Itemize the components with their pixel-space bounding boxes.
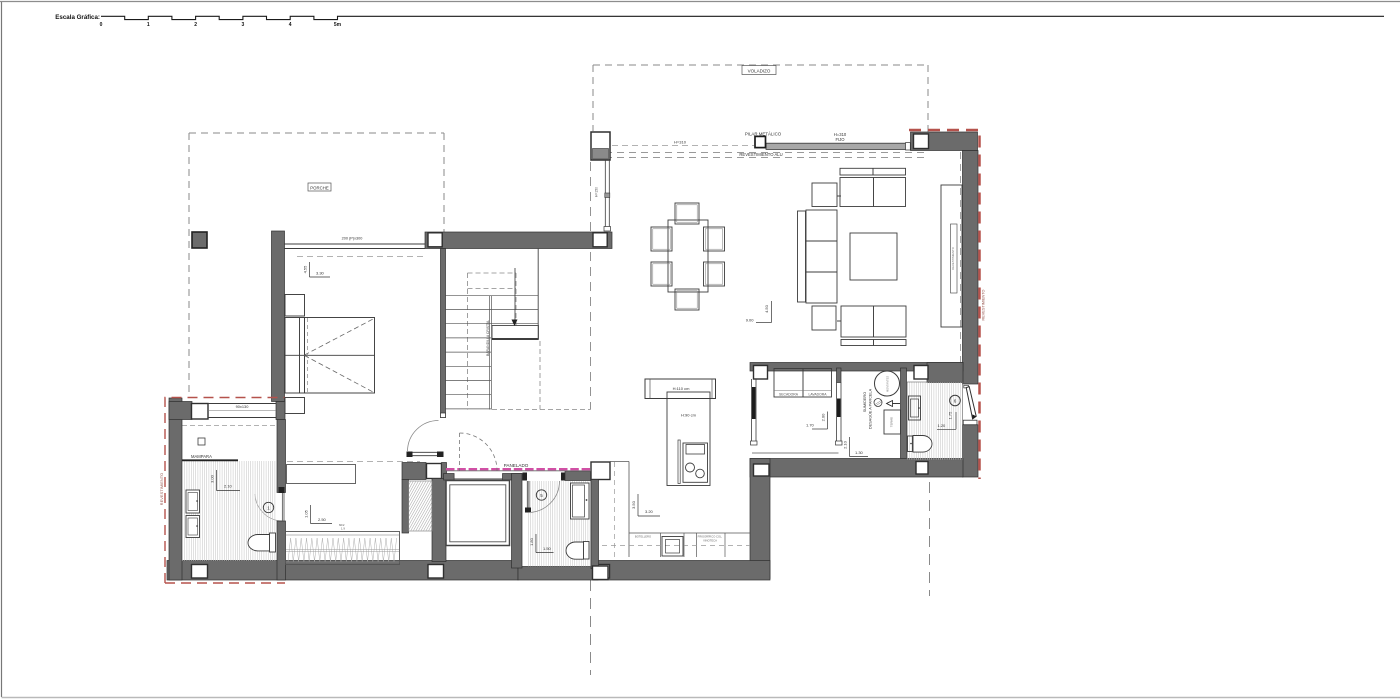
- svg-text:4.55: 4.55: [303, 265, 308, 274]
- svg-text:REVESTIMIENTO: REVESTIMIENTO: [982, 289, 986, 320]
- svg-text:PILAR METÁLICO: PILAR METÁLICO: [745, 131, 782, 136]
- svg-text:H:90 cm: H:90 cm: [681, 413, 697, 418]
- svg-text:5m: 5m: [334, 22, 342, 28]
- svg-text:2.50: 2.50: [318, 517, 327, 522]
- svg-text:MONTANTES: MONTANTES: [886, 376, 890, 392]
- svg-text:9.00: 9.00: [746, 318, 755, 323]
- svg-text:REVESTIMIENTO: REVESTIMIENTO: [159, 473, 164, 506]
- svg-text:1.75: 1.75: [948, 411, 953, 420]
- svg-text:2.00: 2.00: [821, 413, 826, 422]
- svg-text:REVESTIMIENTO: REVESTIMIENTO: [951, 246, 955, 270]
- svg-text:H=310: H=310: [674, 140, 687, 145]
- svg-text:PANELADO: PANELADO: [504, 463, 529, 468]
- svg-text:1.20: 1.20: [938, 423, 947, 428]
- svg-text:FRIGORÍFICO COL.: FRIGORÍFICO COL.: [698, 535, 723, 539]
- svg-text:4.50: 4.50: [764, 304, 769, 313]
- svg-text:1.05: 1.05: [304, 509, 309, 518]
- svg-text:1.9: 1.9: [341, 527, 345, 531]
- svg-text:3.30: 3.30: [316, 271, 325, 276]
- svg-text:3.50: 3.50: [631, 500, 636, 509]
- svg-text:200 (P)x300: 200 (P)x300: [342, 237, 363, 241]
- svg-text:LAVADORA: LAVADORA: [809, 393, 828, 397]
- svg-text:2.10: 2.10: [843, 440, 848, 449]
- svg-text:1.50: 1.50: [543, 546, 552, 551]
- svg-text:3: 3: [242, 22, 245, 28]
- svg-text:BARANDILLA CRISTAL: BARANDILLA CRISTAL: [486, 320, 490, 356]
- svg-text:2: 2: [194, 22, 197, 28]
- svg-text:SUMIDERO: SUMIDERO: [863, 392, 867, 413]
- svg-text:3.20: 3.20: [645, 509, 654, 514]
- svg-text:SECADORA: SECADORA: [779, 393, 799, 397]
- svg-text:PORCHE: PORCHE: [310, 185, 329, 190]
- svg-text:FIJO: FIJO: [835, 137, 845, 142]
- svg-text:2.10: 2.10: [224, 484, 233, 489]
- svg-text:BOTELLERO: BOTELLERO: [635, 535, 651, 539]
- svg-text:DESAGÜE A PARCELA: DESAGÜE A PARCELA: [869, 388, 873, 429]
- svg-text:4: 4: [289, 22, 292, 28]
- svg-text:TERMO: TERMO: [890, 416, 894, 427]
- svg-text:MAMPARA: MAMPARA: [191, 454, 212, 459]
- svg-text:1.80: 1.80: [529, 537, 534, 546]
- svg-text:6: 6: [954, 399, 957, 404]
- svg-text:1.70: 1.70: [806, 423, 815, 428]
- svg-text:3.00: 3.00: [210, 474, 215, 483]
- svg-text:H=150: H=150: [595, 187, 599, 197]
- svg-text:0: 0: [100, 22, 103, 28]
- svg-text:Escala Gráfica:: Escala Gráfica:: [55, 14, 100, 21]
- svg-text:1.30: 1.30: [855, 450, 864, 455]
- svg-text:VOLADIZO: VOLADIZO: [748, 68, 771, 73]
- svg-text:90x130: 90x130: [236, 404, 250, 409]
- svg-text:H:110 cm: H:110 cm: [673, 386, 690, 391]
- svg-text:1: 1: [147, 22, 150, 28]
- svg-text:VINOTECA: VINOTECA: [703, 539, 717, 543]
- svg-text:REVESTIMIENTO ALU: REVESTIMIENTO ALU: [739, 152, 782, 157]
